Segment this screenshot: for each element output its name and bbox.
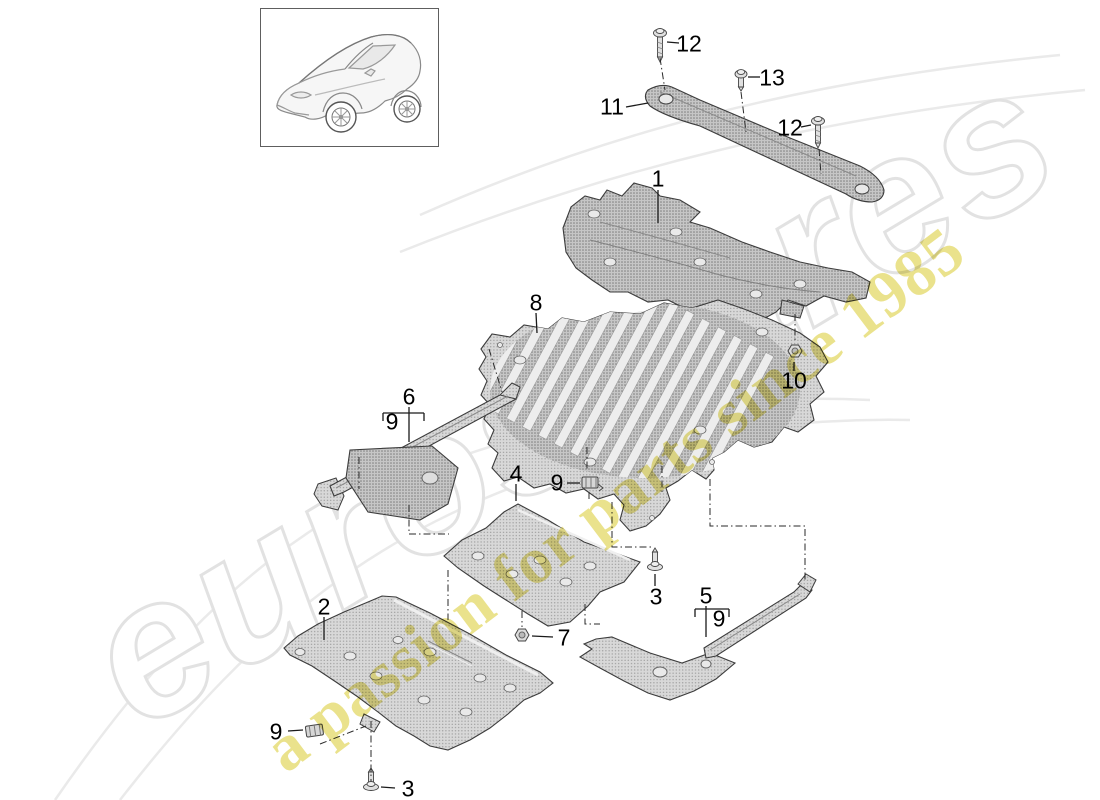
- callout-10[interactable]: 10: [781, 370, 807, 393]
- callout-13[interactable]: 13: [759, 67, 785, 90]
- callout-5[interactable]: 5: [700, 585, 713, 608]
- parts-diagram-page: eurospares: [0, 0, 1100, 800]
- callout-9-clip-mid[interactable]: 9: [551, 472, 564, 495]
- part-11-brace: [645, 85, 884, 202]
- callout-12-right[interactable]: 12: [777, 117, 803, 140]
- screw-13: [735, 70, 747, 91]
- callout-3-bottom[interactable]: 3: [402, 778, 415, 800]
- callout-9-clip-bottom[interactable]: 9: [270, 721, 283, 744]
- callout-9-sill-left[interactable]: 9: [386, 411, 399, 434]
- callout-9-sill-right[interactable]: 9: [713, 608, 726, 631]
- callout-1[interactable]: 1: [652, 168, 665, 191]
- callout-11[interactable]: 11: [600, 96, 624, 119]
- callout-4[interactable]: 4: [510, 463, 523, 486]
- callout-12-top[interactable]: 12: [676, 33, 702, 56]
- screw-12-lower: [812, 117, 825, 149]
- screw-12-upper: [654, 29, 667, 63]
- callout-8[interactable]: 8: [530, 292, 543, 315]
- callout-3-middle[interactable]: 3: [650, 586, 663, 609]
- exploded-parts-drawing: [0, 0, 1100, 800]
- callout-2[interactable]: 2: [318, 596, 331, 619]
- callout-6[interactable]: 6: [403, 386, 416, 409]
- callout-7[interactable]: 7: [558, 627, 571, 650]
